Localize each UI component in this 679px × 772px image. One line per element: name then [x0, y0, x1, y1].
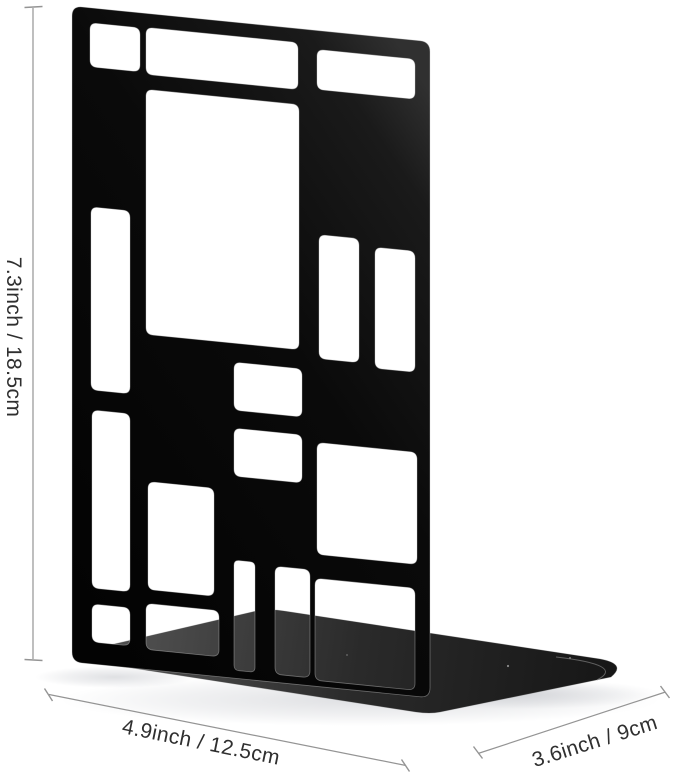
height-dimension-label: 7.3inch / 18.5cm [0, 207, 26, 467]
depth-dimension-tick-right [661, 686, 670, 698]
height-dimension-cap-top [25, 7, 43, 8]
bookend-illustration [0, 0, 679, 772]
width-dimension-tick-right [402, 760, 410, 772]
product-photo: 7.3inch / 18.5cm 4.9inch / 12.5cm 3.6inc… [0, 0, 679, 772]
bookend-panel [72, 6, 430, 698]
height-dimension-cap-bottom [25, 660, 43, 661]
dust-speck [346, 654, 348, 656]
dust-speck [507, 665, 509, 667]
dust-speck [569, 657, 571, 659]
